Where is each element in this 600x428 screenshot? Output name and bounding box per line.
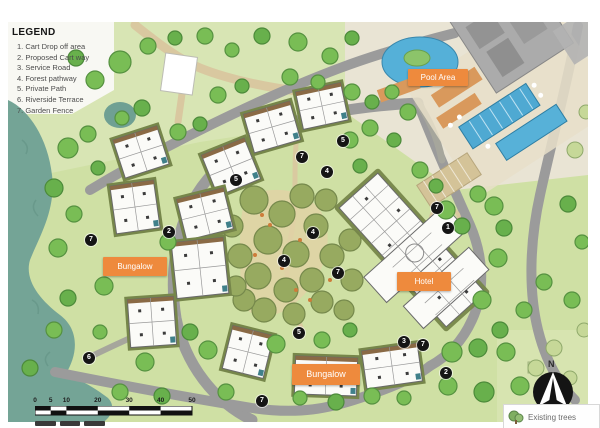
area-label: Pool Area (408, 69, 468, 86)
numbered-marker: 4 (321, 166, 333, 178)
numbered-marker: 5 (337, 135, 349, 147)
scale-tick-label: 10 (63, 397, 70, 404)
scale-tick-label: 40 (157, 397, 164, 404)
legend-title: LEGEND (12, 27, 124, 38)
existing-trees-label: Existing trees (528, 413, 576, 422)
numbered-marker: 1 (442, 222, 454, 234)
small-building (161, 53, 198, 95)
numbered-marker: 4 (307, 227, 319, 239)
area-label: Bungalow (292, 364, 360, 385)
site-plan-image: LEGEND 1. Cart Drop off area2. Proposed … (0, 0, 600, 428)
area-label: Bungalow (103, 257, 167, 276)
compass-north-label: N (548, 359, 555, 369)
numbered-marker: 7 (296, 151, 308, 163)
scale-ticks: 051020304050 (35, 397, 195, 405)
numbered-marker: 3 (398, 336, 410, 348)
legend: LEGEND 1. Cart Drop off area2. Proposed … (12, 27, 124, 116)
bungalow-cluster (358, 340, 426, 392)
legend-item: 3. Service Road (12, 63, 124, 74)
numbered-marker: 7 (431, 202, 443, 214)
bungalow-cluster (168, 234, 232, 302)
tree-icon (508, 409, 524, 425)
scale-bar-graphic (35, 406, 195, 418)
scale-tick-label: 0 (33, 397, 37, 404)
numbered-marker: 7 (417, 339, 429, 351)
numbered-marker: 7 (332, 267, 344, 279)
bungalow-cluster (124, 293, 180, 350)
numbered-marker: 6 (83, 352, 95, 364)
existing-trees-key: Existing trees (503, 404, 600, 428)
legend-item: 5. Private Path (12, 84, 124, 95)
cropped-caption (35, 421, 105, 426)
numbered-marker: 7 (256, 395, 268, 407)
legend-item: 4. Forest pathway (12, 74, 124, 85)
legend-item: 6. Riverside Terrace (12, 95, 124, 106)
scale-tick-label: 5 (49, 397, 53, 404)
scale-tick-label: 50 (188, 397, 195, 404)
numbered-marker: 5 (293, 327, 305, 339)
area-label: Hotel (397, 272, 451, 291)
numbered-marker: 4 (278, 255, 290, 267)
legend-list: 1. Cart Drop off area2. Proposed Cart wa… (12, 42, 124, 116)
legend-item: 1. Cart Drop off area (12, 42, 124, 53)
scale-tick-label: 20 (94, 397, 101, 404)
numbered-marker: 2 (163, 226, 175, 238)
bungalow-cluster (106, 177, 163, 237)
numbered-marker: 7 (85, 234, 97, 246)
legend-item: 2. Proposed Cart way (12, 53, 124, 64)
scale-tick-label: 30 (126, 397, 133, 404)
numbered-marker: 5 (230, 174, 242, 186)
legend-item: 7. Garden Fence (12, 106, 124, 117)
numbered-marker: 2 (440, 367, 452, 379)
